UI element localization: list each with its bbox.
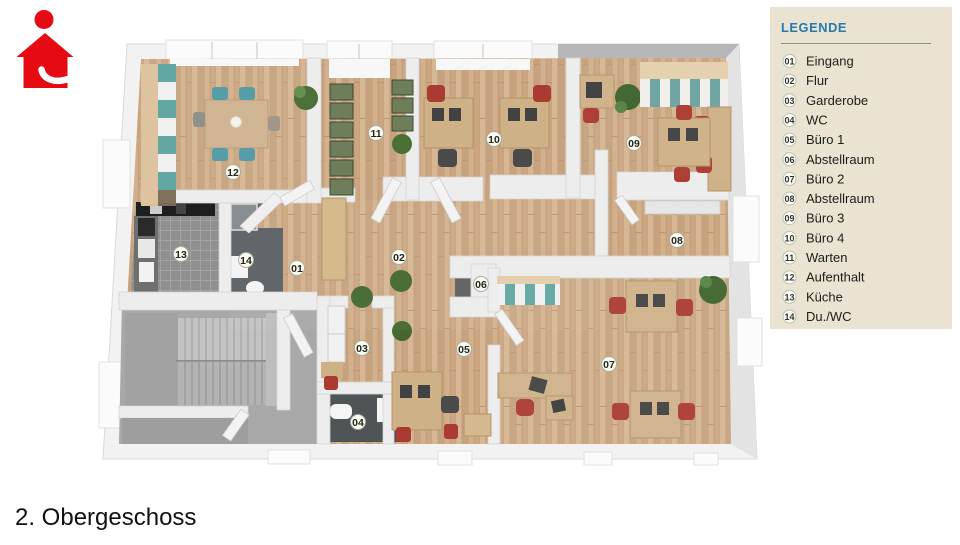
svg-text:Küche: Küche bbox=[806, 289, 843, 304]
svg-text:04: 04 bbox=[784, 116, 794, 126]
svg-text:05: 05 bbox=[458, 344, 470, 356]
svg-text:12: 12 bbox=[227, 167, 239, 179]
svg-text:03: 03 bbox=[784, 96, 794, 106]
svg-text:2. Obergeschoss: 2. Obergeschoss bbox=[15, 504, 196, 531]
svg-text:Abstellraum: Abstellraum bbox=[806, 152, 875, 167]
svg-text:Du./WC: Du./WC bbox=[806, 309, 852, 324]
svg-text:11: 11 bbox=[785, 253, 795, 263]
svg-text:13: 13 bbox=[784, 292, 794, 302]
svg-text:Abstellraum: Abstellraum bbox=[806, 191, 875, 206]
svg-text:Büro 3: Büro 3 bbox=[806, 211, 844, 226]
svg-text:07: 07 bbox=[603, 359, 615, 371]
svg-text:WC: WC bbox=[806, 113, 828, 128]
svg-text:06: 06 bbox=[475, 279, 487, 291]
svg-text:Flur: Flur bbox=[806, 73, 829, 88]
svg-text:03: 03 bbox=[356, 343, 368, 355]
svg-text:Büro 2: Büro 2 bbox=[806, 171, 844, 186]
svg-text:11: 11 bbox=[370, 128, 381, 140]
svg-text:07: 07 bbox=[784, 174, 794, 184]
svg-text:02: 02 bbox=[784, 76, 794, 86]
svg-text:12: 12 bbox=[784, 273, 794, 283]
svg-text:14: 14 bbox=[784, 312, 794, 322]
svg-text:01: 01 bbox=[784, 57, 794, 67]
svg-text:Büro 4: Büro 4 bbox=[806, 230, 844, 245]
svg-text:Aufenthalt: Aufenthalt bbox=[806, 270, 865, 285]
svg-text:08: 08 bbox=[671, 235, 683, 247]
svg-text:10: 10 bbox=[784, 233, 794, 243]
svg-text:Eingang: Eingang bbox=[806, 54, 854, 69]
svg-text:Garderobe: Garderobe bbox=[806, 93, 868, 108]
svg-text:09: 09 bbox=[784, 214, 794, 224]
svg-text:01: 01 bbox=[291, 263, 303, 275]
svg-text:08: 08 bbox=[784, 194, 794, 204]
svg-text:05: 05 bbox=[784, 135, 794, 145]
svg-text:04: 04 bbox=[352, 417, 364, 429]
svg-text:14: 14 bbox=[240, 255, 252, 267]
svg-text:Warten: Warten bbox=[806, 250, 847, 265]
svg-text:02: 02 bbox=[393, 252, 405, 264]
svg-text:10: 10 bbox=[488, 134, 500, 146]
svg-text:LEGENDE: LEGENDE bbox=[781, 20, 847, 35]
svg-text:06: 06 bbox=[784, 155, 794, 165]
svg-text:Büro 1: Büro 1 bbox=[806, 132, 844, 147]
svg-text:09: 09 bbox=[628, 138, 640, 150]
svg-text:13: 13 bbox=[175, 249, 187, 261]
